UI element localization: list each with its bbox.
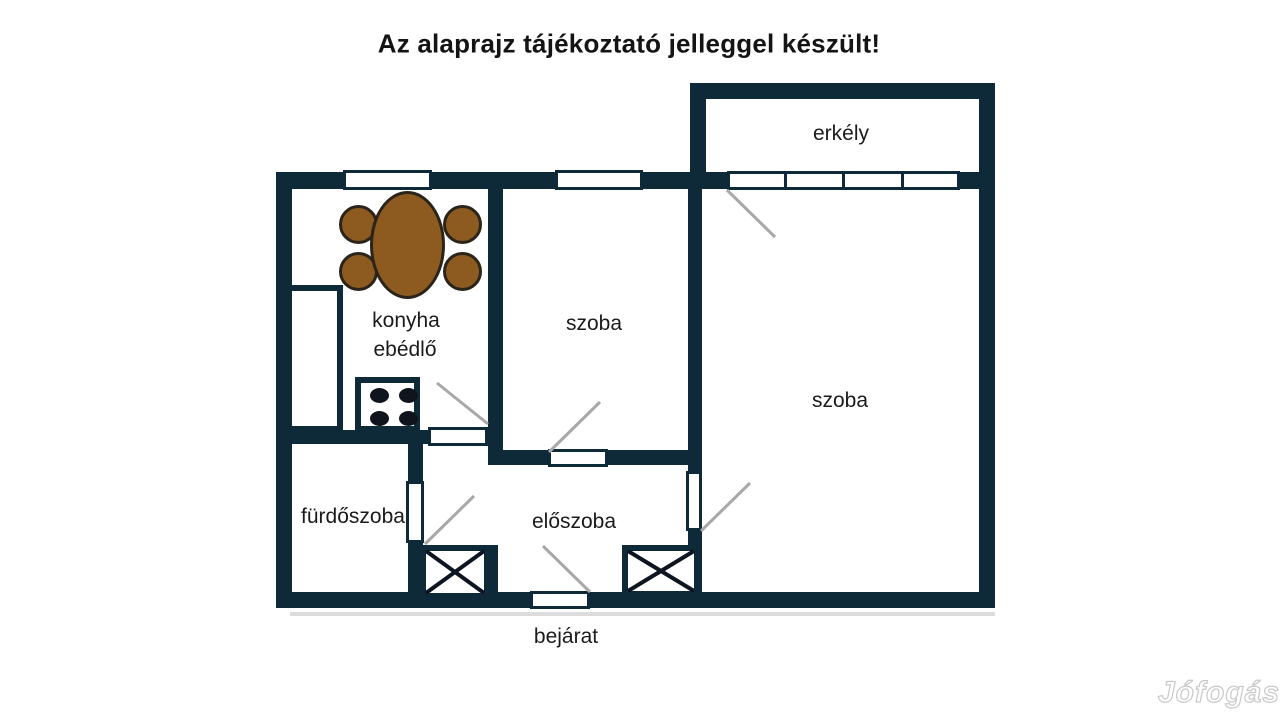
room-label-hallway: előszoba bbox=[532, 510, 616, 534]
disclaimer-title: Az alaprajz tájékoztató jelleggel készül… bbox=[378, 29, 881, 60]
dining-chair bbox=[443, 205, 482, 244]
stove-burner bbox=[399, 411, 418, 426]
kitchen-counter bbox=[286, 285, 343, 432]
wall-large-room-divider bbox=[688, 172, 702, 608]
balcony-door-panel-2 bbox=[784, 171, 845, 190]
closet-box-left bbox=[420, 545, 490, 599]
watermark: Jófogás bbox=[1158, 676, 1280, 710]
wall-kitchen-bath-divider bbox=[276, 430, 430, 444]
stove-burner bbox=[370, 411, 389, 426]
room-label-kitchen-line1: konyha bbox=[372, 309, 440, 333]
small-room-door bbox=[548, 449, 608, 467]
large-room-door bbox=[686, 471, 702, 531]
kitchen-window bbox=[343, 170, 432, 190]
balcony-door-panel-1 bbox=[727, 171, 787, 190]
room-label-large-room: szoba bbox=[812, 389, 868, 413]
stove-burner bbox=[370, 388, 389, 403]
wall-bottom-shadow bbox=[290, 612, 995, 616]
room-label-kitchen-line2: ebédlő bbox=[373, 338, 436, 362]
room-label-bathroom: fürdőszoba bbox=[301, 505, 405, 529]
wall-right bbox=[979, 83, 995, 608]
dining-table bbox=[370, 191, 445, 299]
bathroom-door bbox=[406, 481, 424, 543]
closet-box-right bbox=[622, 545, 700, 597]
kitchen-door bbox=[428, 427, 488, 446]
room-label-entrance: bejárat bbox=[534, 625, 598, 649]
dining-chair bbox=[443, 252, 482, 291]
stove bbox=[355, 377, 420, 432]
room-label-small-room: szoba bbox=[566, 312, 622, 336]
room-label-balcony: erkély bbox=[813, 122, 869, 146]
balcony-door-panel-3 bbox=[842, 171, 904, 190]
entrance-door bbox=[530, 591, 590, 609]
stove-burner bbox=[399, 388, 418, 403]
balcony-wall-top bbox=[690, 83, 995, 99]
balcony-door-panel-4 bbox=[901, 171, 960, 190]
wall-kitchen-room-divider bbox=[488, 172, 503, 465]
small-room-window bbox=[555, 170, 643, 190]
